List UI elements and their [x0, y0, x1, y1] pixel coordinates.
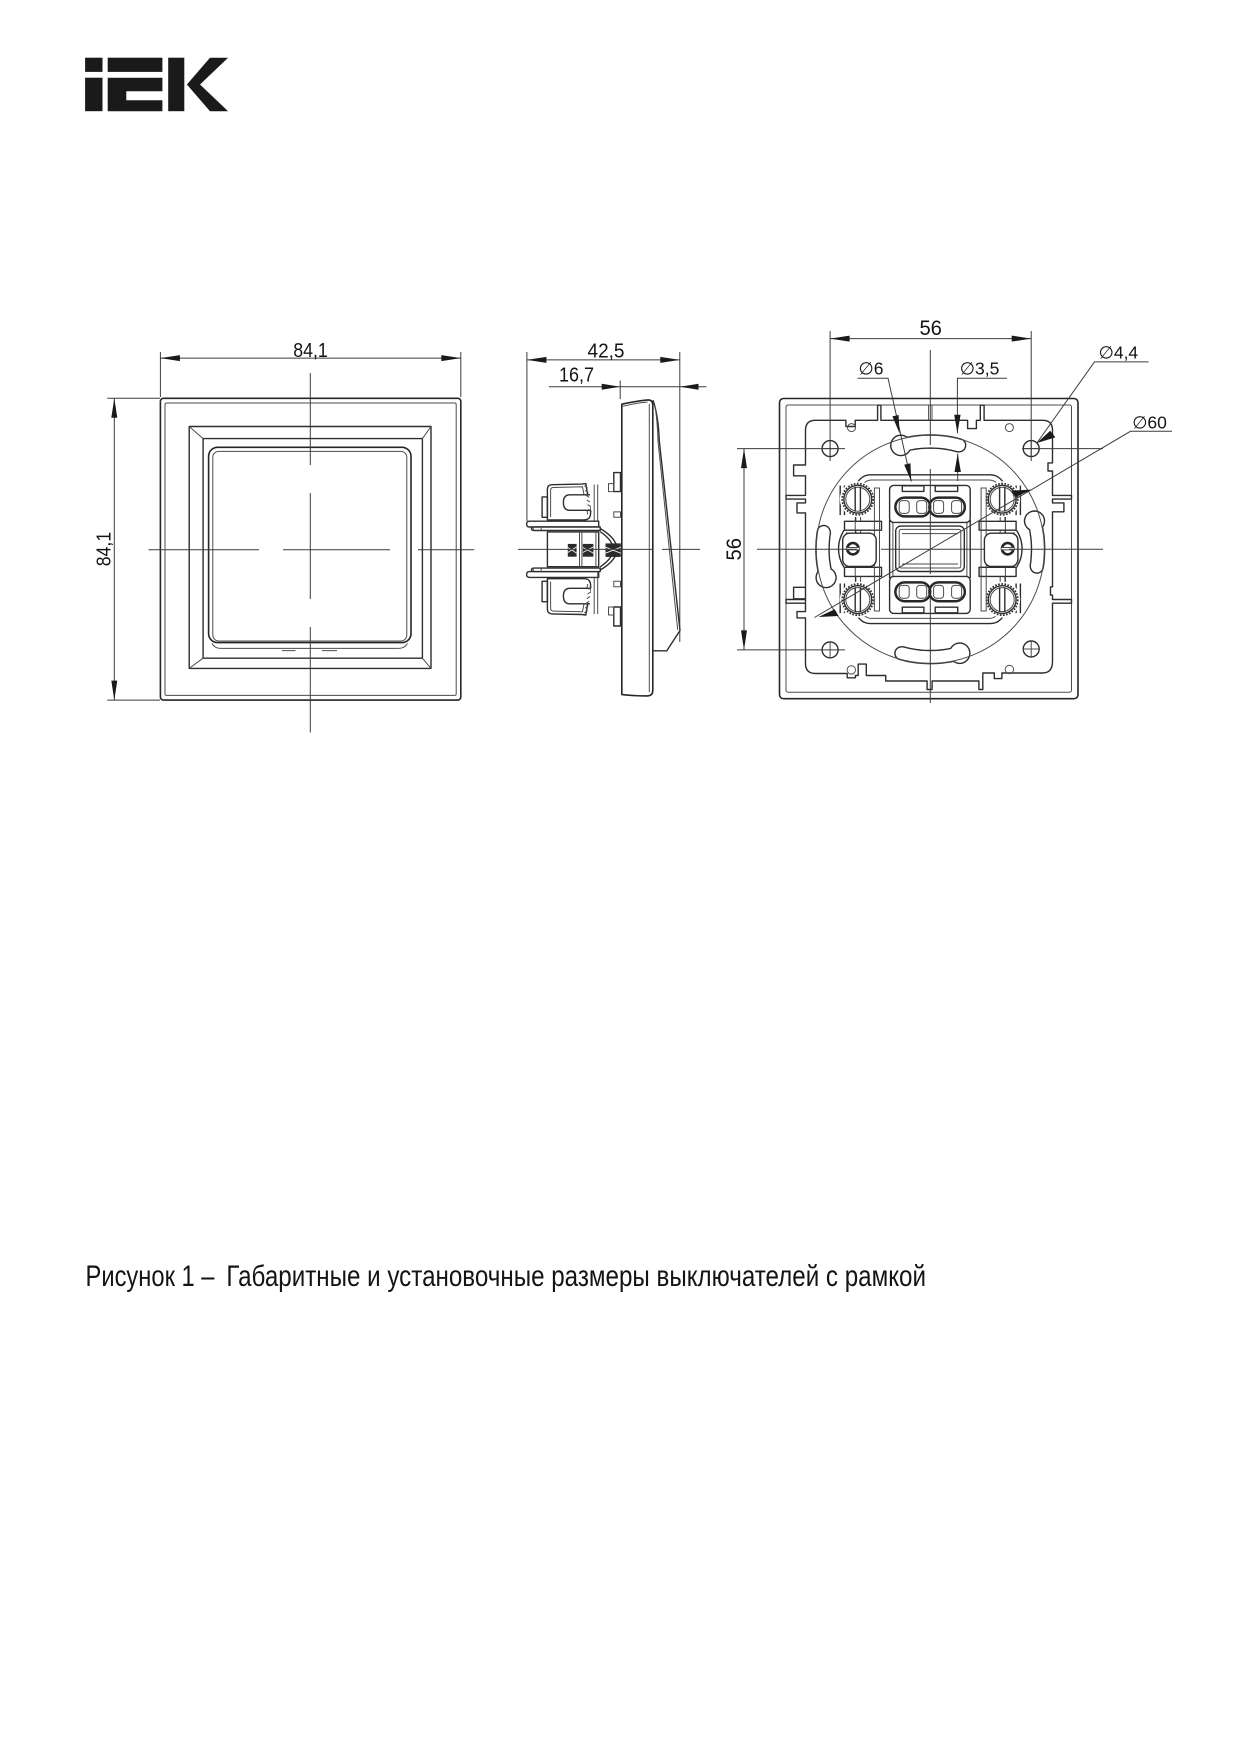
svg-text:∅3,5: ∅3,5 — [960, 359, 1000, 379]
svg-text:56: 56 — [919, 316, 942, 340]
svg-text:56: 56 — [722, 538, 746, 561]
svg-text:∅4,4: ∅4,4 — [1099, 342, 1139, 362]
svg-text:∅60: ∅60 — [1132, 412, 1167, 432]
svg-text:16,7: 16,7 — [559, 364, 594, 386]
svg-text:Габаритные и установочные разм: Габаритные и установочные размеры выключ… — [226, 1260, 926, 1293]
svg-text:Рисунок 1 –: Рисунок 1 – — [86, 1260, 215, 1293]
svg-text:∅6: ∅6 — [859, 359, 884, 379]
svg-text:84,1: 84,1 — [94, 532, 116, 567]
svg-text:84,1: 84,1 — [293, 340, 328, 362]
svg-text:42,5: 42,5 — [588, 341, 625, 363]
